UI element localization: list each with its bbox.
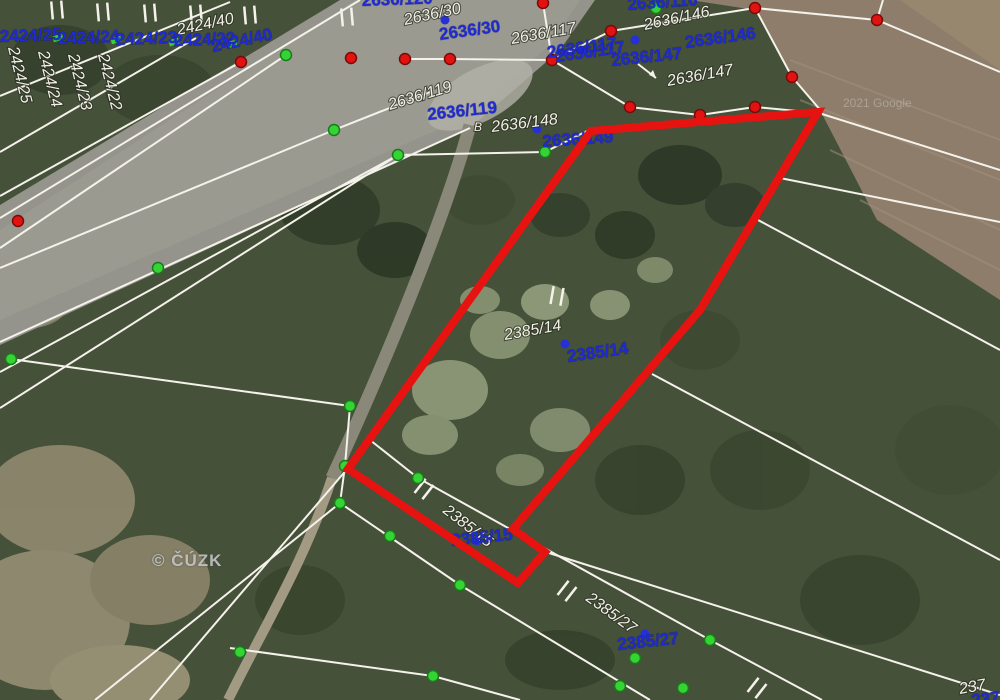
tick [51, 1, 53, 19]
parcel-label-blue: 237 [970, 688, 1000, 700]
boundary-point-red [625, 102, 636, 113]
parcel-boundary-line [11, 359, 350, 466]
parcel-label-white: 2424/24 [34, 48, 65, 109]
boundary-point-green [630, 653, 641, 664]
parcel-boundary-line [552, 60, 818, 115]
label-anchor-point-blue [631, 36, 640, 45]
boundary-point-green [6, 354, 17, 365]
tick [154, 4, 156, 22]
boundary-point-red [346, 53, 357, 64]
boundary-point-green [153, 263, 164, 274]
landuse-tick-symbol [558, 581, 577, 601]
landuse-tick-symbol [244, 6, 256, 25]
tick [551, 286, 554, 304]
parcel-boundary-line [822, 114, 1000, 170]
boundary-point-green [678, 683, 689, 694]
landuse-tick-symbol [748, 678, 767, 698]
label-arrow-head [649, 70, 656, 78]
parcel-label-white: B [474, 120, 482, 134]
parcel-boundary-line [758, 220, 1000, 350]
cadastral-map-view[interactable]: 2424/252424/242424/232424/222424/402636/… [0, 0, 1000, 700]
parcel-boundary-line [150, 468, 348, 700]
tick [565, 587, 576, 601]
tick [422, 485, 433, 499]
landuse-tick-symbol [97, 3, 109, 22]
boundary-point-green [385, 531, 396, 542]
tick [755, 684, 766, 698]
parcel-label-blue: 2424/23 [115, 28, 177, 49]
parcel-label-white: 2636/147 [665, 61, 736, 90]
boundary-point-red [445, 54, 456, 65]
parcel-label-blue: 2385/14 [566, 339, 630, 366]
parcel-boundary-line [877, 20, 1000, 72]
boundary-point-green [345, 401, 356, 412]
parcel-label-blue: 2424/24 [57, 27, 120, 48]
parcel-label-white: 2385/14 [502, 317, 563, 344]
boundary-point-green [455, 580, 466, 591]
parcel-label-blue: 2636/146 [684, 23, 757, 52]
parcel-boundary-line [0, 155, 398, 408]
parcel-boundary-line [0, 155, 398, 372]
boundary-point-red [13, 216, 24, 227]
boundary-point-green [235, 647, 246, 658]
boundary-point-green [393, 150, 404, 161]
tick [351, 8, 353, 26]
tick [748, 678, 759, 692]
boundary-point-green [329, 125, 340, 136]
boundary-point-green [281, 50, 292, 61]
parcel-boundary-line [230, 648, 520, 700]
parcel-boundary-line [755, 8, 822, 112]
parcel-label-blue: 2636/119 [426, 98, 498, 124]
boundary-point-green [428, 671, 439, 682]
boundary-point-red [236, 57, 247, 68]
cadastre-overlay-layer: 2424/252424/242424/232424/222424/402636/… [0, 0, 1000, 700]
tick [97, 3, 99, 21]
landuse-tick-symbol [144, 4, 156, 23]
tick [254, 6, 256, 24]
boundary-point-green [705, 635, 716, 646]
boundary-point-red [400, 54, 411, 65]
tick [144, 4, 146, 22]
boundary-point-red [787, 72, 798, 83]
boundary-point-red [750, 102, 761, 113]
parcel-label-white: 2424/25 [4, 44, 35, 105]
parcel-boundary-line [780, 178, 1000, 222]
parcel-label-blue: 2424/25 [0, 25, 62, 46]
tick [244, 6, 246, 24]
tick [107, 3, 109, 21]
landuse-tick-symbol [551, 286, 564, 305]
boundary-point-green [615, 681, 626, 692]
parcel-boundary-line [652, 374, 1000, 560]
tick [341, 8, 343, 26]
landuse-tick-symbol [51, 1, 63, 20]
boundary-point-green [413, 473, 424, 484]
boundary-point-red [750, 3, 761, 14]
boundary-point-green [335, 498, 346, 509]
parcel-boundary-line [95, 503, 340, 700]
tick [61, 1, 63, 19]
boundary-point-red [872, 15, 883, 26]
boundary-point-red [538, 0, 549, 9]
tick [560, 288, 563, 306]
tick [558, 581, 569, 595]
